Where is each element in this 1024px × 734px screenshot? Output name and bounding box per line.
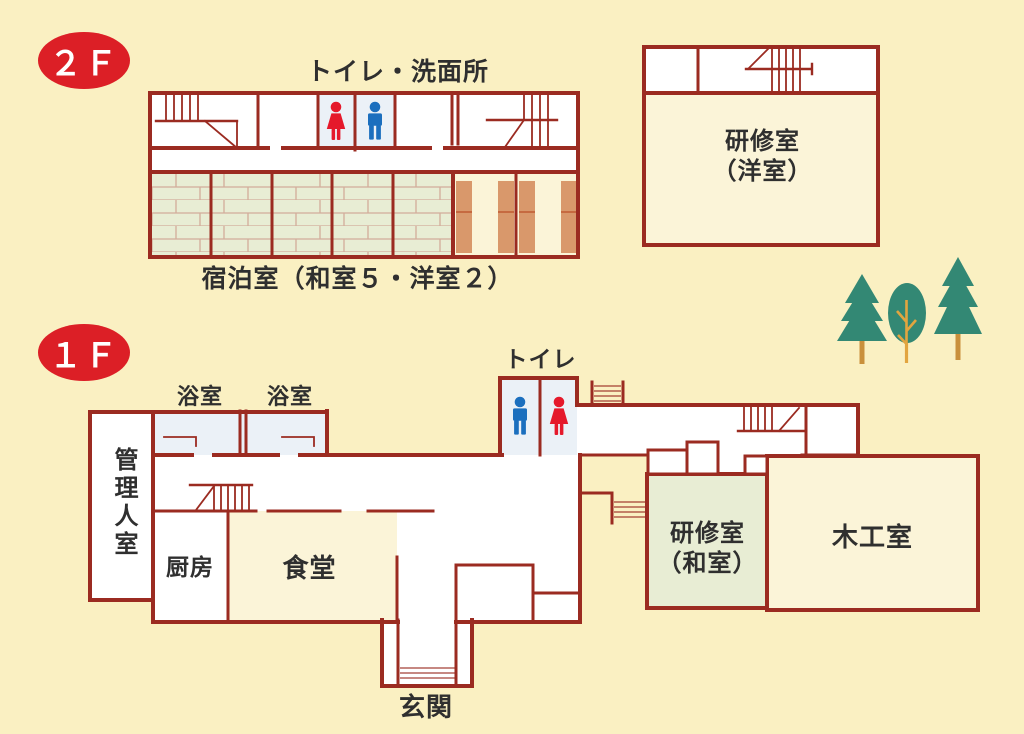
floor1-badge: １Ｆ bbox=[38, 324, 130, 381]
closet-c bbox=[745, 456, 767, 474]
closet-b bbox=[687, 442, 718, 474]
caretaker-room-label: 管理人室 bbox=[104, 447, 138, 559]
training-room-west-line2: （洋室） bbox=[690, 157, 835, 187]
guest-rooms-label: 宿泊室（和室５・洋室２） bbox=[190, 264, 525, 295]
tatami-pattern bbox=[152, 172, 453, 255]
trees bbox=[837, 257, 982, 364]
north-entry-steps bbox=[594, 386, 621, 401]
training-room-west-line1: 研修室 bbox=[690, 127, 835, 157]
toilet-washroom-label: トイレ・洗面所 bbox=[278, 57, 518, 88]
woodwork-room-label: 木工室 bbox=[825, 521, 920, 554]
floor2-main-building bbox=[150, 93, 578, 257]
bath-label-1: 浴室 bbox=[170, 383, 230, 411]
bath-label-2: 浴室 bbox=[260, 383, 320, 411]
passage-steps bbox=[614, 502, 646, 517]
training-room-west-label: 研修室 （洋室） bbox=[690, 127, 835, 187]
inner-room bbox=[456, 565, 533, 622]
floorplan-diagram: ２Ｆ １Ｆ トイレ・洗面所 宿泊室（和室５・洋室２） 研修室 （洋室） 浴室 浴… bbox=[0, 0, 1024, 734]
pine-tree-icon bbox=[837, 274, 887, 364]
pine-tree-icon bbox=[934, 257, 982, 360]
closet-a bbox=[648, 450, 687, 474]
entrance-label: 玄関 bbox=[395, 691, 457, 724]
kitchen-label: 厨房 bbox=[158, 553, 222, 582]
round-tree-icon bbox=[888, 283, 926, 363]
training-room-japanese-line1: 研修室 bbox=[640, 519, 775, 549]
dining-label: 食堂 bbox=[272, 552, 347, 585]
toilet-label-1f: トイレ bbox=[498, 345, 583, 374]
training-room-japanese-label: 研修室 （和室） bbox=[640, 519, 775, 579]
entrance-vestibule bbox=[382, 620, 472, 686]
training-room-japanese-line2: （和室） bbox=[640, 549, 775, 579]
floor2-badge: ２Ｆ bbox=[38, 32, 130, 89]
